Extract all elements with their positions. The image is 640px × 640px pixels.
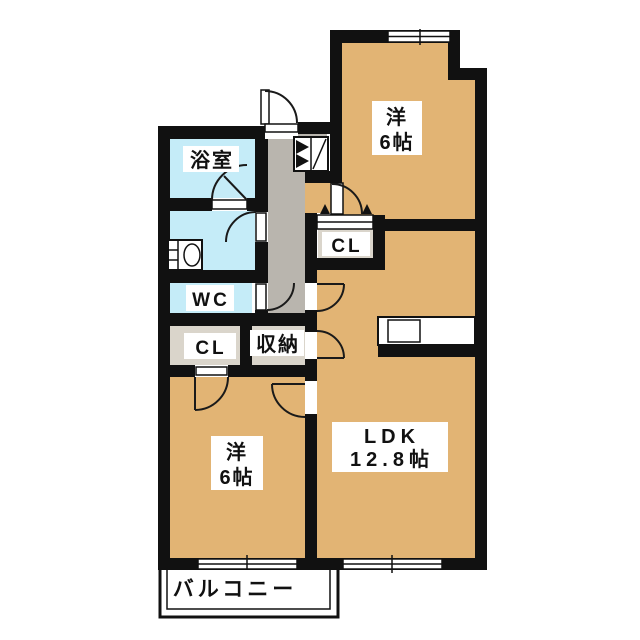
door-opening — [305, 381, 317, 414]
balcony-label: バルコニー — [173, 578, 298, 601]
bedroom-bottom-closet-sill — [196, 367, 227, 375]
door-opening — [305, 283, 317, 310]
entrance-door-sill — [265, 124, 298, 132]
bathroom-label: 浴室 — [190, 148, 234, 172]
hall-closet-label: CL — [195, 338, 226, 359]
washbasin-icon — [168, 240, 202, 270]
ldk-size-label: 12.8帖 — [350, 448, 434, 471]
wall-segment — [158, 126, 170, 570]
bedroom-top-name-label: 洋 — [386, 105, 408, 129]
room-bedroom-top-floor — [342, 43, 448, 83]
toilet-door-leaf — [256, 284, 266, 310]
bedroom-top-closet-label: CL — [331, 236, 362, 257]
washroom-door-leaf — [256, 213, 266, 241]
entrance-door-leaf — [261, 90, 269, 124]
room-ldk-floor — [385, 231, 475, 271]
bedroom-bottom-size-label: 6帖 — [219, 466, 254, 489]
wall-segment — [298, 122, 330, 134]
bedroom-bottom-name-label: 洋 — [226, 440, 248, 464]
ldk-name-label: LDK — [364, 426, 420, 448]
wall-segment — [158, 126, 265, 139]
wall-segment — [158, 365, 317, 377]
toilet-label: WC — [192, 290, 230, 311]
wall-segment — [380, 219, 487, 231]
wall-segment — [373, 215, 385, 270]
floor-plan-drawing: 浴室 WC CL 収納 CL 洋 6帖 洋 6帖 LDK 12.8帖 バルコニー — [0, 0, 640, 640]
kitchen-counter-icon — [378, 317, 475, 345]
wall-segment — [305, 171, 340, 183]
door-opening — [305, 332, 317, 359]
wall-segment — [475, 68, 487, 570]
wall-segment — [158, 270, 268, 283]
wall-segment — [378, 345, 487, 357]
wall-segment — [330, 30, 342, 183]
bathroom-door-sill — [212, 200, 247, 209]
storage-label: 収納 — [256, 332, 300, 356]
entrance-door-arc — [265, 91, 297, 123]
bedroom-top-size-label: 6帖 — [379, 131, 414, 154]
floor-plan: 浴室 WC CL 収納 CL 洋 6帖 洋 6帖 LDK 12.8帖 バルコニー — [0, 0, 640, 640]
corridor-floor — [268, 171, 305, 313]
wall-segment — [158, 313, 317, 326]
room-ldk-floor — [317, 270, 475, 558]
bedroom-top-door-leaf — [331, 183, 343, 214]
